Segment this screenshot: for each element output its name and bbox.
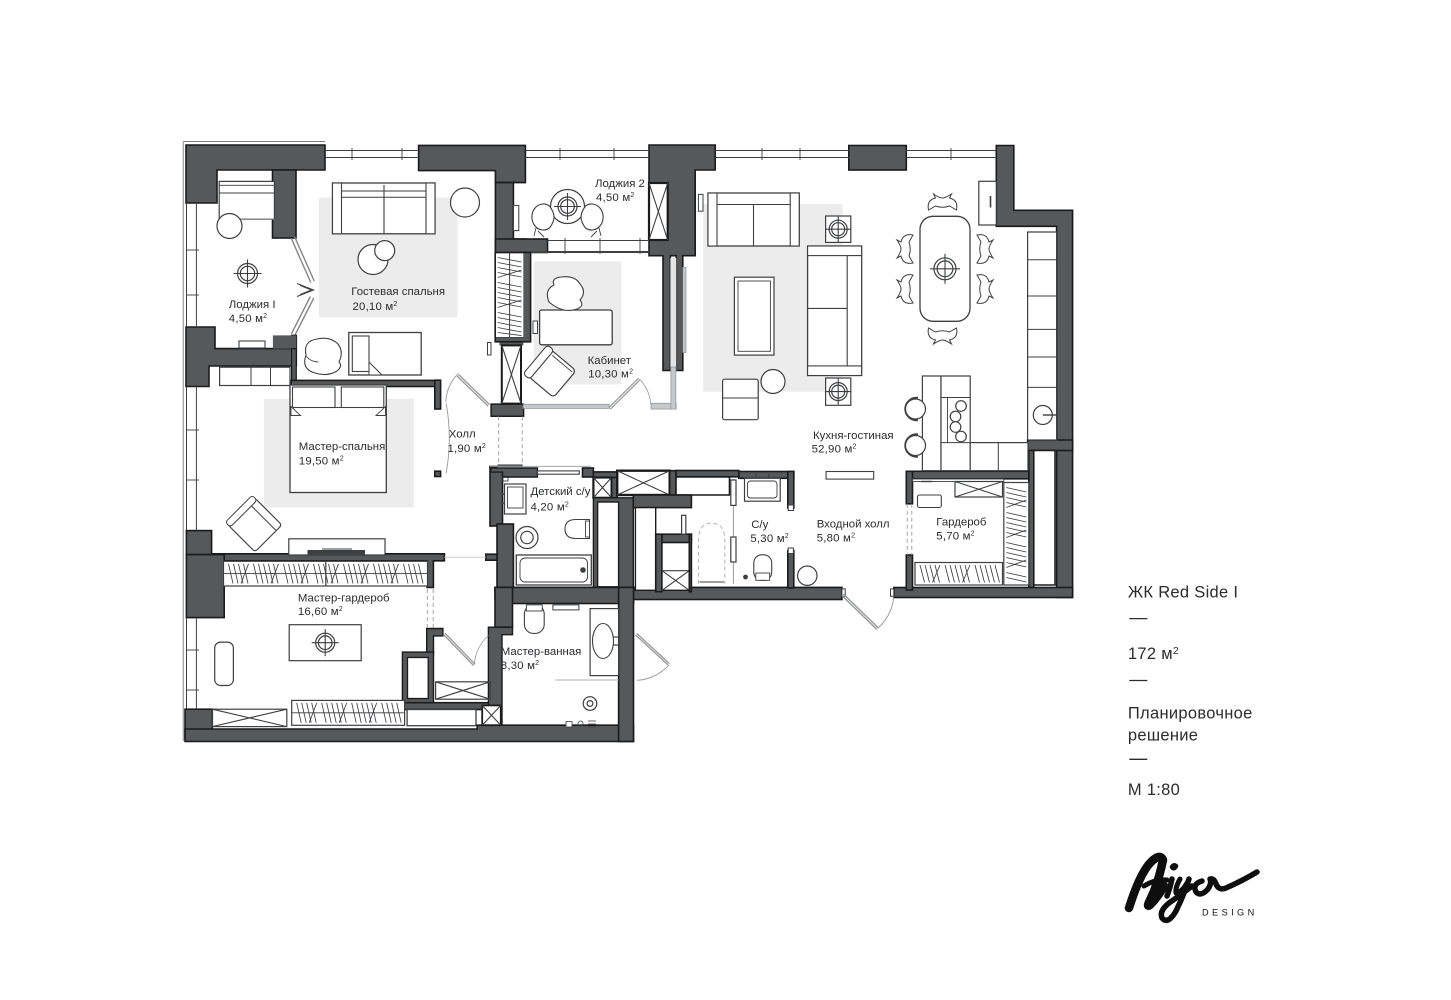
svg-text:Гардероб: Гардероб [936,517,987,529]
svg-text:Мастер-ванная: Мастер-ванная [501,646,582,658]
svg-text:решение: решение [1128,727,1198,745]
svg-text:172 м2: 172 м2 [1128,645,1179,663]
svg-text:5,70 м2: 5,70 м2 [936,530,975,543]
svg-text:Мастер-спальня: Мастер-спальня [299,441,385,453]
svg-text:Лоджия I: Лоджия I [229,299,276,311]
svg-text:5,80 м2: 5,80 м2 [817,532,856,545]
svg-text:Кухня-гостиная: Кухня-гостиная [813,430,894,442]
svg-text:5,30 м2: 5,30 м2 [750,532,789,545]
svg-text:Гостевая спальня: Гостевая спальня [351,286,445,298]
svg-text:DESIGN: DESIGN [1202,908,1258,918]
svg-text:Лоджия 2: Лоджия 2 [595,178,645,190]
svg-text:8,30 м2: 8,30 м2 [501,659,540,672]
svg-text:Входной холл: Входной холл [817,519,890,531]
svg-text:Мастер-гардероб: Мастер-гардероб [298,593,390,605]
svg-text:1,90 м2: 1,90 м2 [448,442,487,455]
svg-text:М 1:80: М 1:80 [1128,781,1180,799]
svg-text:4,50 м2: 4,50 м2 [596,191,635,204]
svg-text:20,10 м2: 20,10 м2 [353,300,398,313]
svg-text:52,90 м2: 52,90 м2 [812,443,857,456]
svg-text:Холл: Холл [449,429,476,441]
svg-text:Планировочное: Планировочное [1128,705,1253,723]
svg-text:19,50 м2: 19,50 м2 [299,455,344,468]
svg-text:16,60 м2: 16,60 м2 [298,605,343,618]
svg-text:Детский с/у: Детский с/у [531,486,591,498]
svg-text:С/у: С/у [751,519,768,531]
svg-text:4,20 м2: 4,20 м2 [531,501,570,514]
svg-text:4,50 м2: 4,50 м2 [229,312,268,325]
svg-text:10,30 м2: 10,30 м2 [588,368,633,381]
svg-text:ЖК Red Side I: ЖК Red Side I [1128,584,1238,602]
svg-text:Кабинет: Кабинет [588,355,632,367]
